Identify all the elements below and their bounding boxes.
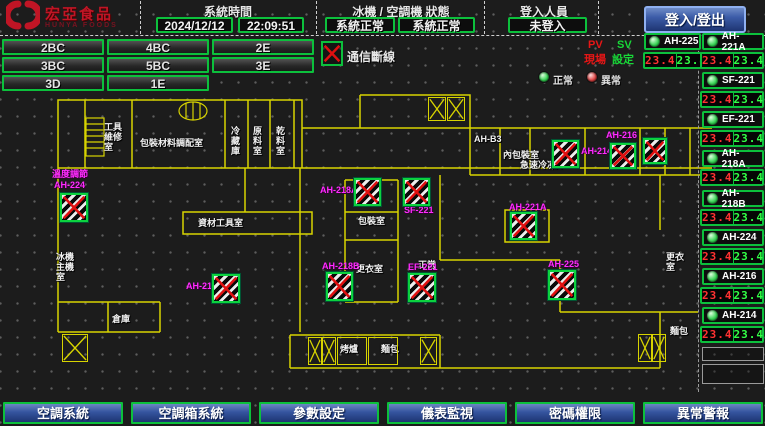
elevator-x-icon — [62, 334, 88, 362]
room-label: 麵包 — [670, 326, 688, 336]
room-label: 更衣室 — [666, 252, 688, 272]
plan-unit-label: AH-218B — [322, 262, 360, 271]
unit-status-lamp-icon — [706, 74, 719, 87]
elevator-x-icon — [447, 97, 465, 121]
plan-ahu-icon[interactable] — [610, 143, 636, 169]
unit-name-label: AH-221A — [722, 31, 762, 53]
sidebar-unit-row[interactable]: AH-218B — [702, 190, 764, 207]
unit-status-lamp-icon — [706, 152, 719, 165]
sidebar-unit-row[interactable]: AH-224 — [702, 229, 764, 246]
sidebar-unit-ah225[interactable]: AH-225 — [644, 33, 701, 50]
nav-button-ac-system[interactable]: 空調系統 — [3, 402, 123, 424]
room-label: AH-B3 — [474, 134, 502, 144]
nav-button-ahu-system[interactable]: 空調箱系統 — [131, 402, 251, 424]
unit-status-lamp-icon — [706, 113, 719, 126]
nav-button-password-auth[interactable]: 密碼權限 — [515, 402, 635, 424]
spiral-stairs-icon — [179, 102, 207, 120]
nav-button-meter-monitor[interactable]: 儀表監視 — [387, 402, 507, 424]
unit-sv-value: 23.4 — [734, 54, 765, 67]
unit-sv-value: 23.4 — [734, 211, 765, 224]
unit-pv-value: 23.4 — [702, 171, 734, 184]
unit-sv-value: 23.4 — [734, 289, 765, 302]
unit-pv-value: 23.4 — [702, 132, 734, 145]
sidebar-empty-slot — [702, 347, 764, 361]
stairs-icon — [86, 118, 104, 156]
unit-name-label: AH-218B — [722, 188, 762, 210]
room-label: 包裝室 — [358, 216, 385, 226]
nav-button-alarm[interactable]: 異常警報 — [643, 402, 763, 424]
room-label: 倉庫 — [112, 314, 130, 324]
plan-unit-label: AH-218A — [320, 186, 358, 195]
unit-sv-value: 23.4 — [734, 171, 765, 184]
unit-sv-value: 23.4 — [734, 328, 765, 341]
sidebar-unit-row[interactable]: AH-218A — [702, 150, 764, 167]
unit-sv-value: 23.4 — [734, 132, 765, 145]
elevator-x-icon — [420, 337, 437, 365]
plan-unit-label: AH-225 — [548, 260, 579, 269]
elevator-x-icon — [652, 334, 666, 362]
unit-name-label: SF-221 — [722, 75, 755, 86]
unit-pv-value: 23.4 — [702, 289, 734, 302]
sidebar-unit-values: 23.423.4 — [700, 326, 764, 343]
sidebar-unit-values: 23.423.4 — [700, 169, 764, 186]
sidebar-unit-values: 23.423.4 — [700, 248, 764, 265]
unit-pv-value: 23.4 — [702, 328, 734, 341]
unit-pv-value: 23.4 — [702, 93, 734, 106]
plan-unit-label: AH-216 — [606, 131, 637, 140]
room-label: 冰機 主機室 — [56, 252, 78, 282]
plan-ahu-icon[interactable] — [60, 193, 88, 222]
plan-unit-label: SF-221 — [404, 206, 434, 215]
sidebar-empty-slot — [702, 364, 764, 384]
plan-ahu-icon[interactable] — [552, 140, 579, 168]
plan-ahu-icon[interactable] — [643, 138, 667, 164]
sidebar-unit-ah225-values: 23.4 23.4 — [643, 52, 702, 69]
plan-ahu-icon[interactable] — [548, 270, 576, 300]
sidebar-unit-values: 23.423.4 — [700, 130, 764, 147]
sidebar-divider — [698, 36, 699, 392]
sidebar-unit-row[interactable]: EF-221 — [702, 111, 764, 128]
plan-unit-label: EF-221 — [408, 263, 438, 272]
plan-unit-label: AH-224 — [54, 181, 85, 190]
plan-unit-label: AH-214 — [581, 147, 612, 156]
unit-name-label: EF-221 — [722, 114, 755, 125]
unit-pv-value: 23.4 — [645, 54, 677, 67]
room-label: 工具 維修室 — [104, 122, 130, 152]
plan-ahu-icon[interactable] — [510, 212, 537, 240]
plan-unit-label: AH-221A — [509, 203, 547, 212]
unit-name-label: AH-216 — [722, 271, 756, 282]
unit-status-lamp-icon — [706, 309, 719, 322]
sidebar-unit-values: 23.423.4 — [700, 209, 764, 226]
unit-status-lamp-icon — [706, 35, 719, 48]
room-label: 資材工具室 — [198, 218, 243, 228]
plan-ahu-icon[interactable] — [326, 272, 353, 301]
unit-pv-value: 23.4 — [702, 54, 734, 67]
unit-status-lamp-icon — [706, 231, 719, 244]
unit-pv-value: 23.4 — [702, 211, 734, 224]
plan-ahu-icon[interactable] — [354, 178, 381, 206]
room-label: 更衣室 — [356, 264, 383, 274]
plan-ahu-icon[interactable] — [408, 273, 436, 302]
unit-sv-value: 23.4 — [734, 93, 765, 106]
comm-fail-x-icon — [62, 195, 86, 220]
unit-status-lamp-icon — [648, 35, 661, 48]
room-label: 乾料室 — [275, 126, 285, 166]
unit-name-label: AH-224 — [722, 232, 756, 243]
plan-ahu-icon[interactable] — [212, 274, 240, 303]
room-box — [368, 337, 398, 365]
unit-status-lamp-icon — [706, 270, 719, 283]
plan-unit-sublabel: 溫度調節 — [52, 170, 88, 179]
room-box — [337, 337, 367, 365]
unit-status-lamp-icon — [706, 192, 719, 205]
unit-name-label: AH-214 — [722, 310, 756, 321]
unit-name-label: AH-218A — [722, 148, 762, 170]
room-label: 原料室 — [252, 126, 262, 166]
unit-pv-value: 23.4 — [702, 250, 734, 263]
hmi-screen: 宏亞食品 HUNYA FOODS 系統時間 2024/12/12 22:09:5… — [0, 0, 765, 426]
sidebar-unit-row[interactable]: SF-221 — [702, 72, 764, 89]
sidebar-unit-values: 23.423.4 — [700, 287, 764, 304]
nav-button-param-settings[interactable]: 參數設定 — [259, 402, 379, 424]
plan-ahu-icon[interactable] — [403, 178, 430, 206]
unit-name-label: AH-225 — [664, 36, 698, 47]
elevator-x-icon — [638, 334, 652, 362]
unit-sv-value: 23.4 — [734, 250, 765, 263]
sidebar-unit-values: 23.423.4 — [700, 91, 764, 108]
elevator-x-icon — [428, 97, 446, 121]
sidebar-unit-values: 23.423.4 — [700, 52, 764, 69]
sidebar-unit-row[interactable]: AH-216 — [702, 268, 764, 285]
room-label: 包裝材料調配室 — [140, 138, 220, 148]
elevator-x-icon — [308, 337, 322, 365]
sidebar-unit-row[interactable]: AH-221A — [702, 33, 764, 50]
elevator-x-icon — [322, 337, 336, 365]
sidebar-unit-row[interactable]: AH-214 — [702, 307, 764, 324]
room-label: 內包裝室 — [503, 150, 543, 160]
room-label: 冷藏庫 — [230, 126, 240, 166]
